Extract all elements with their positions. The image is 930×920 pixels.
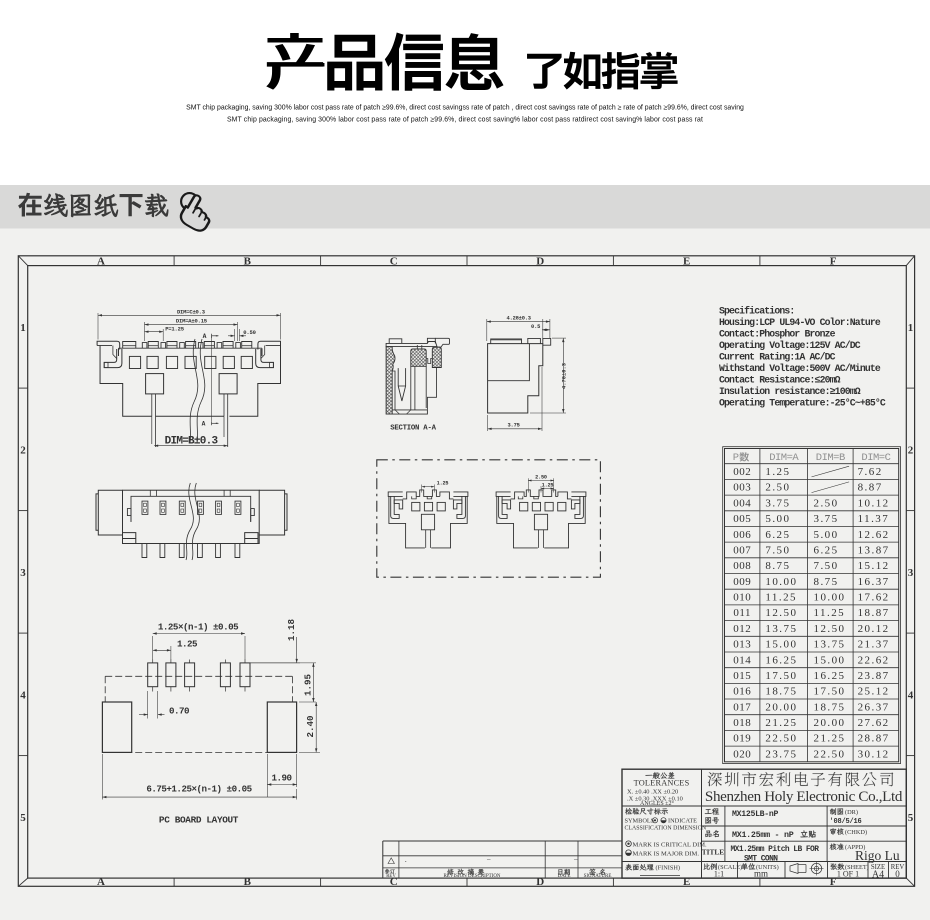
svg-text:SECTION A-A: SECTION A-A	[390, 425, 436, 433]
svg-text:E: E	[683, 255, 690, 267]
svg-text:5: 5	[908, 812, 914, 824]
svg-text:17.62: 17.62	[858, 592, 890, 604]
svg-text:018: 018	[733, 717, 751, 729]
svg-text:1 OF 1: 1 OF 1	[837, 869, 859, 878]
svg-text:Operating Temperature:-25°C~+8: Operating Temperature:-25°C~+85°C	[719, 397, 886, 408]
svg-text:019: 019	[733, 733, 751, 745]
svg-text:3.75: 3.75	[508, 423, 520, 429]
svg-text:REVISION DESCRIPTION: REVISION DESCRIPTION	[443, 874, 500, 879]
svg-text:12.50: 12.50	[814, 623, 846, 635]
svg-text:DIM=C±0.3: DIM=C±0.3	[177, 309, 206, 316]
svg-text:3: 3	[908, 567, 914, 579]
svg-text:DIM=A±0.15: DIM=A±0.15	[176, 318, 208, 325]
svg-text:12.50: 12.50	[765, 607, 797, 619]
svg-text:008: 008	[733, 560, 751, 572]
svg-text:15.00: 15.00	[814, 654, 846, 666]
svg-text:Rigo Lu: Rigo Lu	[855, 848, 900, 863]
svg-text:25.12: 25.12	[858, 686, 890, 698]
svg-text:B: B	[244, 255, 252, 267]
svg-text:10.00: 10.00	[765, 576, 797, 588]
svg-text:1.95: 1.95	[303, 673, 314, 696]
svg-text:P: P	[733, 452, 739, 464]
svg-text:5.00: 5.00	[765, 513, 790, 525]
svg-text:4: 4	[20, 689, 26, 701]
svg-text:2.40: 2.40	[305, 715, 316, 737]
svg-text:INDICATE: INDICATE	[668, 818, 697, 825]
svg-text:15.00: 15.00	[765, 639, 797, 651]
svg-text:2.50: 2.50	[765, 482, 790, 494]
svg-text:26.37: 26.37	[858, 701, 890, 713]
svg-text:A4: A4	[872, 869, 884, 880]
svg-text:22.50: 22.50	[814, 748, 846, 760]
svg-text:22.62: 22.62	[858, 654, 890, 666]
svg-text:13.87: 13.87	[858, 544, 890, 556]
svg-text:1: 1	[20, 322, 26, 334]
svg-text:SMT chip packaging, saving 300: SMT chip packaging, saving 300% labor co…	[227, 117, 703, 124]
svg-text:18.75: 18.75	[814, 701, 846, 713]
svg-text:(CHKD): (CHKD)	[845, 829, 867, 836]
svg-text:002: 002	[733, 466, 751, 478]
svg-text:D: D	[536, 876, 544, 888]
svg-text:A: A	[97, 876, 105, 888]
svg-text:6.25: 6.25	[814, 544, 839, 556]
svg-text:Specifications:: Specifications:	[719, 306, 794, 317]
svg-text:P=1.25: P=1.25	[165, 326, 185, 333]
svg-text:27.62: 27.62	[858, 717, 890, 729]
svg-text:8.75: 8.75	[814, 576, 839, 588]
svg-text:MX125LB-nP: MX125LB-nP	[732, 810, 779, 819]
svg-text:23.87: 23.87	[858, 670, 890, 682]
svg-text:3.75: 3.75	[765, 497, 790, 509]
svg-text:6.75+1.25×(n-1) ±0.05: 6.75+1.25×(n-1) ±0.05	[146, 784, 252, 795]
svg-text:SIGNATURE: SIGNATURE	[584, 874, 612, 879]
svg-text:MX1.25mm Pitch LB FOR: MX1.25mm Pitch LB FOR	[731, 845, 820, 854]
svg-text:011: 011	[733, 607, 751, 619]
svg-text:4: 4	[908, 689, 914, 701]
svg-text:1.25×(n-1) ±0.05: 1.25×(n-1) ±0.05	[158, 622, 239, 633]
svg-text:15.12: 15.12	[858, 560, 890, 572]
svg-text:SMT chip packaging, saving 300: SMT chip packaging, saving 300% labor co…	[186, 105, 744, 112]
svg-text:020: 020	[733, 748, 751, 760]
svg-text:12.62: 12.62	[858, 529, 890, 541]
svg-text:mm: mm	[754, 869, 768, 879]
svg-text:1: 1	[908, 322, 914, 334]
svg-text:MARK IS CRITICAL DIM.: MARK IS CRITICAL DIM.	[633, 841, 708, 848]
svg-text:(FINISH): (FINISH)	[656, 865, 681, 872]
svg-text:B: B	[244, 876, 252, 888]
svg-text:18.75: 18.75	[765, 686, 797, 698]
svg-text:014: 014	[733, 654, 751, 666]
svg-text:0.70: 0.70	[169, 706, 189, 717]
svg-text:TOLERANCES: TOLERANCES	[634, 779, 690, 788]
svg-text:DATE: DATE	[558, 874, 571, 879]
svg-text:18.87: 18.87	[858, 607, 890, 619]
svg-text:DIM=C: DIM=C	[861, 452, 890, 464]
svg-text:–: –	[573, 855, 578, 863]
svg-text:8.87: 8.87	[858, 482, 883, 494]
svg-text:1.25: 1.25	[765, 466, 790, 478]
svg-text:16.25: 16.25	[765, 654, 797, 666]
svg-text:SYMBOLS: SYMBOLS	[625, 818, 655, 825]
svg-text:Insulation resistance:≥100mΩ: Insulation resistance:≥100mΩ	[719, 386, 861, 397]
svg-text:3: 3	[20, 567, 26, 579]
svg-text:X. ±0.40 .XX ±0.20: X. ±0.40 .XX ±0.20	[627, 788, 678, 795]
svg-text:DIM=B: DIM=B	[816, 452, 845, 464]
svg-text:007: 007	[733, 544, 751, 556]
svg-text:11.25: 11.25	[814, 607, 846, 619]
svg-text:10.00: 10.00	[814, 592, 846, 604]
svg-text:003: 003	[733, 482, 751, 494]
svg-text:20.00: 20.00	[814, 717, 846, 729]
svg-text:PC BOARD LAYOUT: PC BOARD LAYOUT	[159, 815, 239, 826]
svg-text:009: 009	[733, 576, 751, 588]
svg-text:004: 004	[733, 497, 751, 509]
svg-text:0.5: 0.5	[531, 324, 540, 330]
svg-text:1.25: 1.25	[542, 483, 554, 489]
svg-text:(DR): (DR)	[845, 809, 858, 816]
svg-text:D: D	[536, 255, 544, 267]
svg-text:21.25: 21.25	[765, 717, 797, 729]
svg-text:–: –	[486, 855, 491, 863]
svg-text:23.75: 23.75	[765, 748, 797, 760]
svg-text:C: C	[390, 255, 398, 267]
svg-text:Contact Resistance:≤20mΩ: Contact Resistance:≤20mΩ	[719, 374, 841, 385]
svg-text:SMT CONN: SMT CONN	[744, 854, 778, 863]
svg-text:1:1: 1:1	[714, 869, 724, 878]
svg-text:5: 5	[20, 812, 26, 824]
svg-text:A: A	[203, 333, 207, 340]
svg-text:005: 005	[733, 513, 751, 525]
svg-text:7.50: 7.50	[814, 560, 839, 572]
svg-text:7.62: 7.62	[858, 466, 883, 478]
svg-text:1.18: 1.18	[286, 618, 297, 641]
svg-text:Housing:LCP UL94-VO Color:Natu: Housing:LCP UL94-VO Color:Nature	[719, 317, 881, 328]
svg-text:21.25: 21.25	[814, 733, 846, 745]
svg-text:Contact:Phosphor Bronze: Contact:Phosphor Bronze	[719, 329, 836, 340]
svg-text:Current Rating:1A AC/DC: Current Rating:1A AC/DC	[719, 352, 836, 363]
svg-text:2: 2	[20, 444, 26, 456]
svg-text:F: F	[830, 255, 837, 267]
svg-text:22.50: 22.50	[765, 733, 797, 745]
svg-text:'08/5/16: '08/5/16	[830, 818, 862, 826]
svg-text:Shenzhen Holy Electronic Co.,L: Shenzhen Holy Electronic Co.,Ltd	[705, 789, 903, 805]
svg-text:16.37: 16.37	[858, 576, 890, 588]
svg-text:Withstand Voltage:500V AC/Minu: Withstand Voltage:500V AC/Minute	[719, 363, 881, 374]
svg-text:3.75: 3.75	[814, 513, 839, 525]
svg-text:8.75: 8.75	[765, 560, 790, 572]
svg-text:1.25: 1.25	[177, 639, 198, 650]
svg-text:2: 2	[908, 444, 914, 456]
svg-text:ANGLES ±2°: ANGLES ±2°	[640, 800, 674, 807]
svg-text:6.25: 6.25	[765, 529, 790, 541]
svg-text:012: 012	[733, 623, 751, 635]
svg-text:11.37: 11.37	[858, 513, 890, 525]
svg-text:28.87: 28.87	[858, 733, 890, 745]
svg-text:016: 016	[733, 686, 751, 698]
svg-text:017: 017	[733, 701, 751, 713]
svg-text:MARK IS MAJOR DIM.: MARK IS MAJOR DIM.	[633, 850, 700, 857]
svg-text:20.00: 20.00	[765, 701, 797, 713]
svg-text:1.90: 1.90	[271, 773, 291, 784]
svg-text:7.50: 7.50	[765, 544, 790, 556]
svg-text:.: .	[404, 857, 408, 864]
svg-text:13.75: 13.75	[814, 639, 846, 651]
svg-text:10.12: 10.12	[858, 497, 890, 509]
svg-text:013: 013	[733, 639, 751, 651]
svg-text:MX1.25mm - nP: MX1.25mm - nP	[732, 830, 794, 840]
svg-text:2.50: 2.50	[814, 497, 839, 509]
svg-text:5.00: 5.00	[814, 529, 839, 541]
svg-text:CLASSIFICATION DIMENSION: CLASSIFICATION DIMENSION	[625, 826, 707, 832]
svg-text:DIM=A: DIM=A	[769, 452, 799, 464]
svg-text:4.28±0.3: 4.28±0.3	[507, 316, 531, 322]
svg-text:13.75: 13.75	[765, 623, 797, 635]
svg-text:006: 006	[733, 529, 751, 541]
svg-text:0.50: 0.50	[243, 329, 255, 336]
svg-text:17.50: 17.50	[814, 686, 846, 698]
svg-text:0: 0	[895, 869, 900, 879]
svg-text:21.37: 21.37	[858, 639, 890, 651]
svg-text:2.50: 2.50	[535, 474, 547, 480]
svg-text:1.25: 1.25	[437, 481, 449, 487]
svg-text:16.25: 16.25	[814, 670, 846, 682]
svg-text:30.12: 30.12	[858, 748, 890, 760]
svg-text:TITLE: TITLE	[702, 847, 724, 856]
svg-text:20.12: 20.12	[858, 623, 890, 635]
svg-text:REV: REV	[386, 874, 396, 879]
svg-text:015: 015	[733, 670, 751, 682]
svg-text:010: 010	[733, 592, 751, 604]
svg-text:Operating Voltage:125V AC/DC: Operating Voltage:125V AC/DC	[719, 340, 861, 351]
svg-text:4.70±0.3: 4.70±0.3	[562, 363, 568, 389]
svg-text:11.25: 11.25	[765, 592, 797, 604]
svg-text:17.50: 17.50	[765, 670, 797, 682]
svg-text:A: A	[97, 255, 105, 267]
svg-text:A: A	[202, 420, 206, 427]
